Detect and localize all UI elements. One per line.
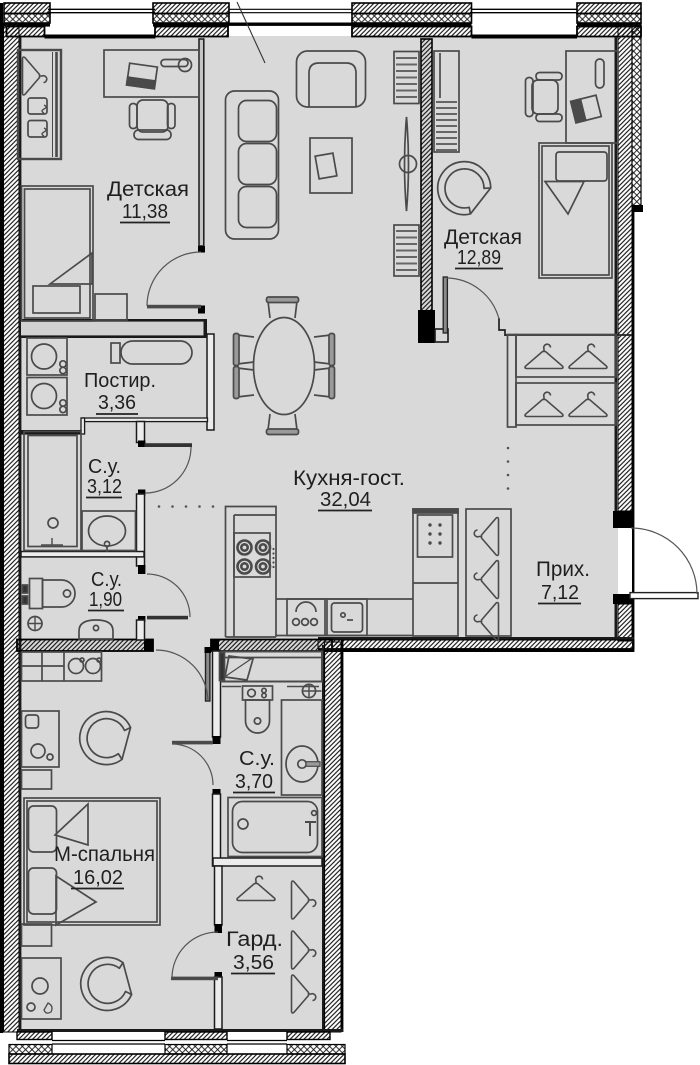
svg-text:С.у.: С.у.: [91, 569, 122, 591]
svg-text:16,02: 16,02: [73, 867, 123, 889]
svg-text:Постир.: Постир.: [84, 370, 156, 392]
svg-text:С.у.: С.у.: [88, 456, 121, 478]
svg-text:3,70: 3,70: [235, 771, 273, 793]
svg-text:3,56: 3,56: [233, 952, 274, 974]
svg-text:11,38: 11,38: [122, 201, 168, 223]
svg-text:3,36: 3,36: [98, 392, 136, 414]
svg-text:7,12: 7,12: [541, 582, 579, 604]
svg-text:12,89: 12,89: [457, 247, 501, 269]
svg-text:М-спальня: М-спальня: [54, 843, 155, 866]
svg-text:Кухня-гост.: Кухня-гост.: [293, 467, 405, 490]
svg-text:Детская: Детская: [444, 226, 522, 249]
svg-text:Гард.: Гард.: [226, 928, 283, 951]
svg-text:1,90: 1,90: [89, 589, 122, 611]
svg-text:С.у.: С.у.: [239, 748, 275, 770]
svg-text:Прих.: Прих.: [536, 558, 590, 581]
svg-text:3,12: 3,12: [87, 476, 122, 498]
svg-text:32,04: 32,04: [320, 489, 371, 511]
svg-text:Детская: Детская: [107, 178, 189, 201]
